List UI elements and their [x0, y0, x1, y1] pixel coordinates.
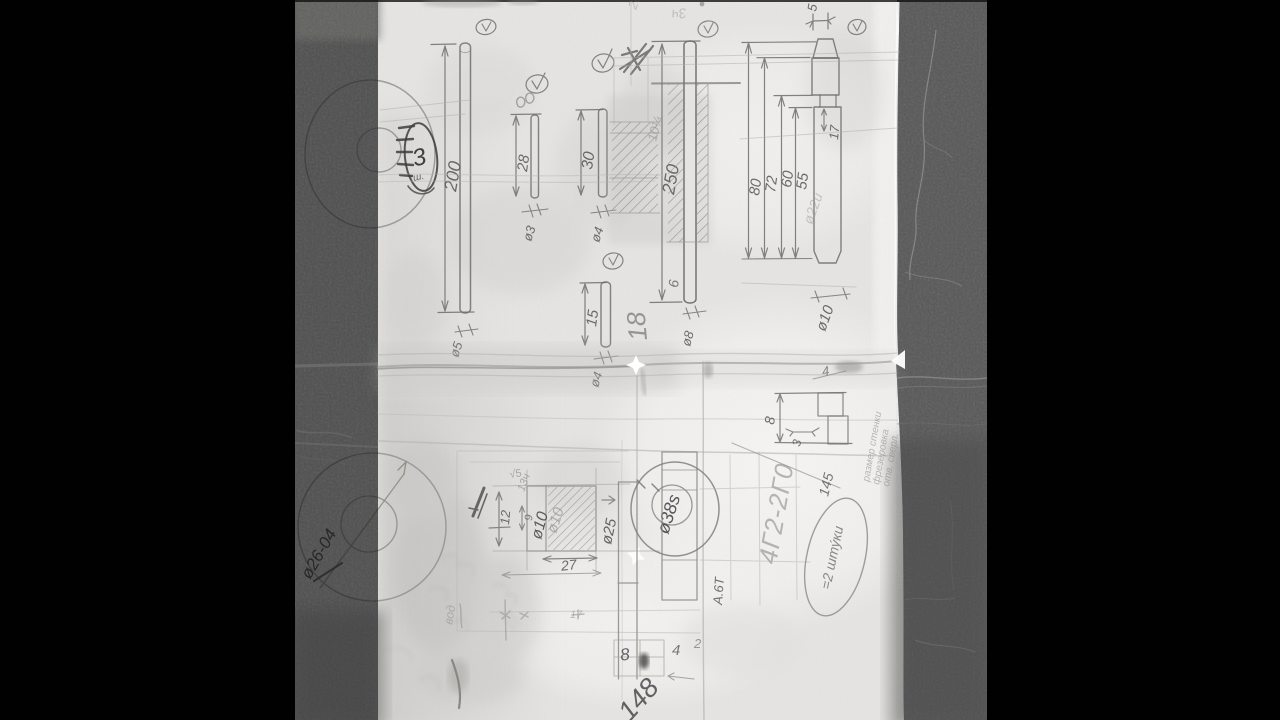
- svg-text:4: 4: [672, 642, 680, 659]
- svg-text:ш.: ш.: [412, 171, 425, 184]
- svg-text:27: 27: [559, 556, 578, 574]
- svg-text:2: 2: [693, 636, 702, 651]
- svg-text:15: 15: [583, 308, 602, 328]
- svg-text:28: 28: [514, 153, 533, 174]
- svg-text:30: 30: [579, 150, 598, 170]
- svg-text:55: 55: [793, 171, 812, 191]
- svg-text:А.6Т: А.6Т: [710, 576, 727, 606]
- svg-text:3ч: 3ч: [671, 5, 688, 23]
- svg-text:17: 17: [570, 609, 583, 621]
- svg-text:12: 12: [497, 509, 513, 525]
- svg-text:18: 18: [621, 310, 653, 342]
- svg-text:9: 9: [523, 514, 535, 521]
